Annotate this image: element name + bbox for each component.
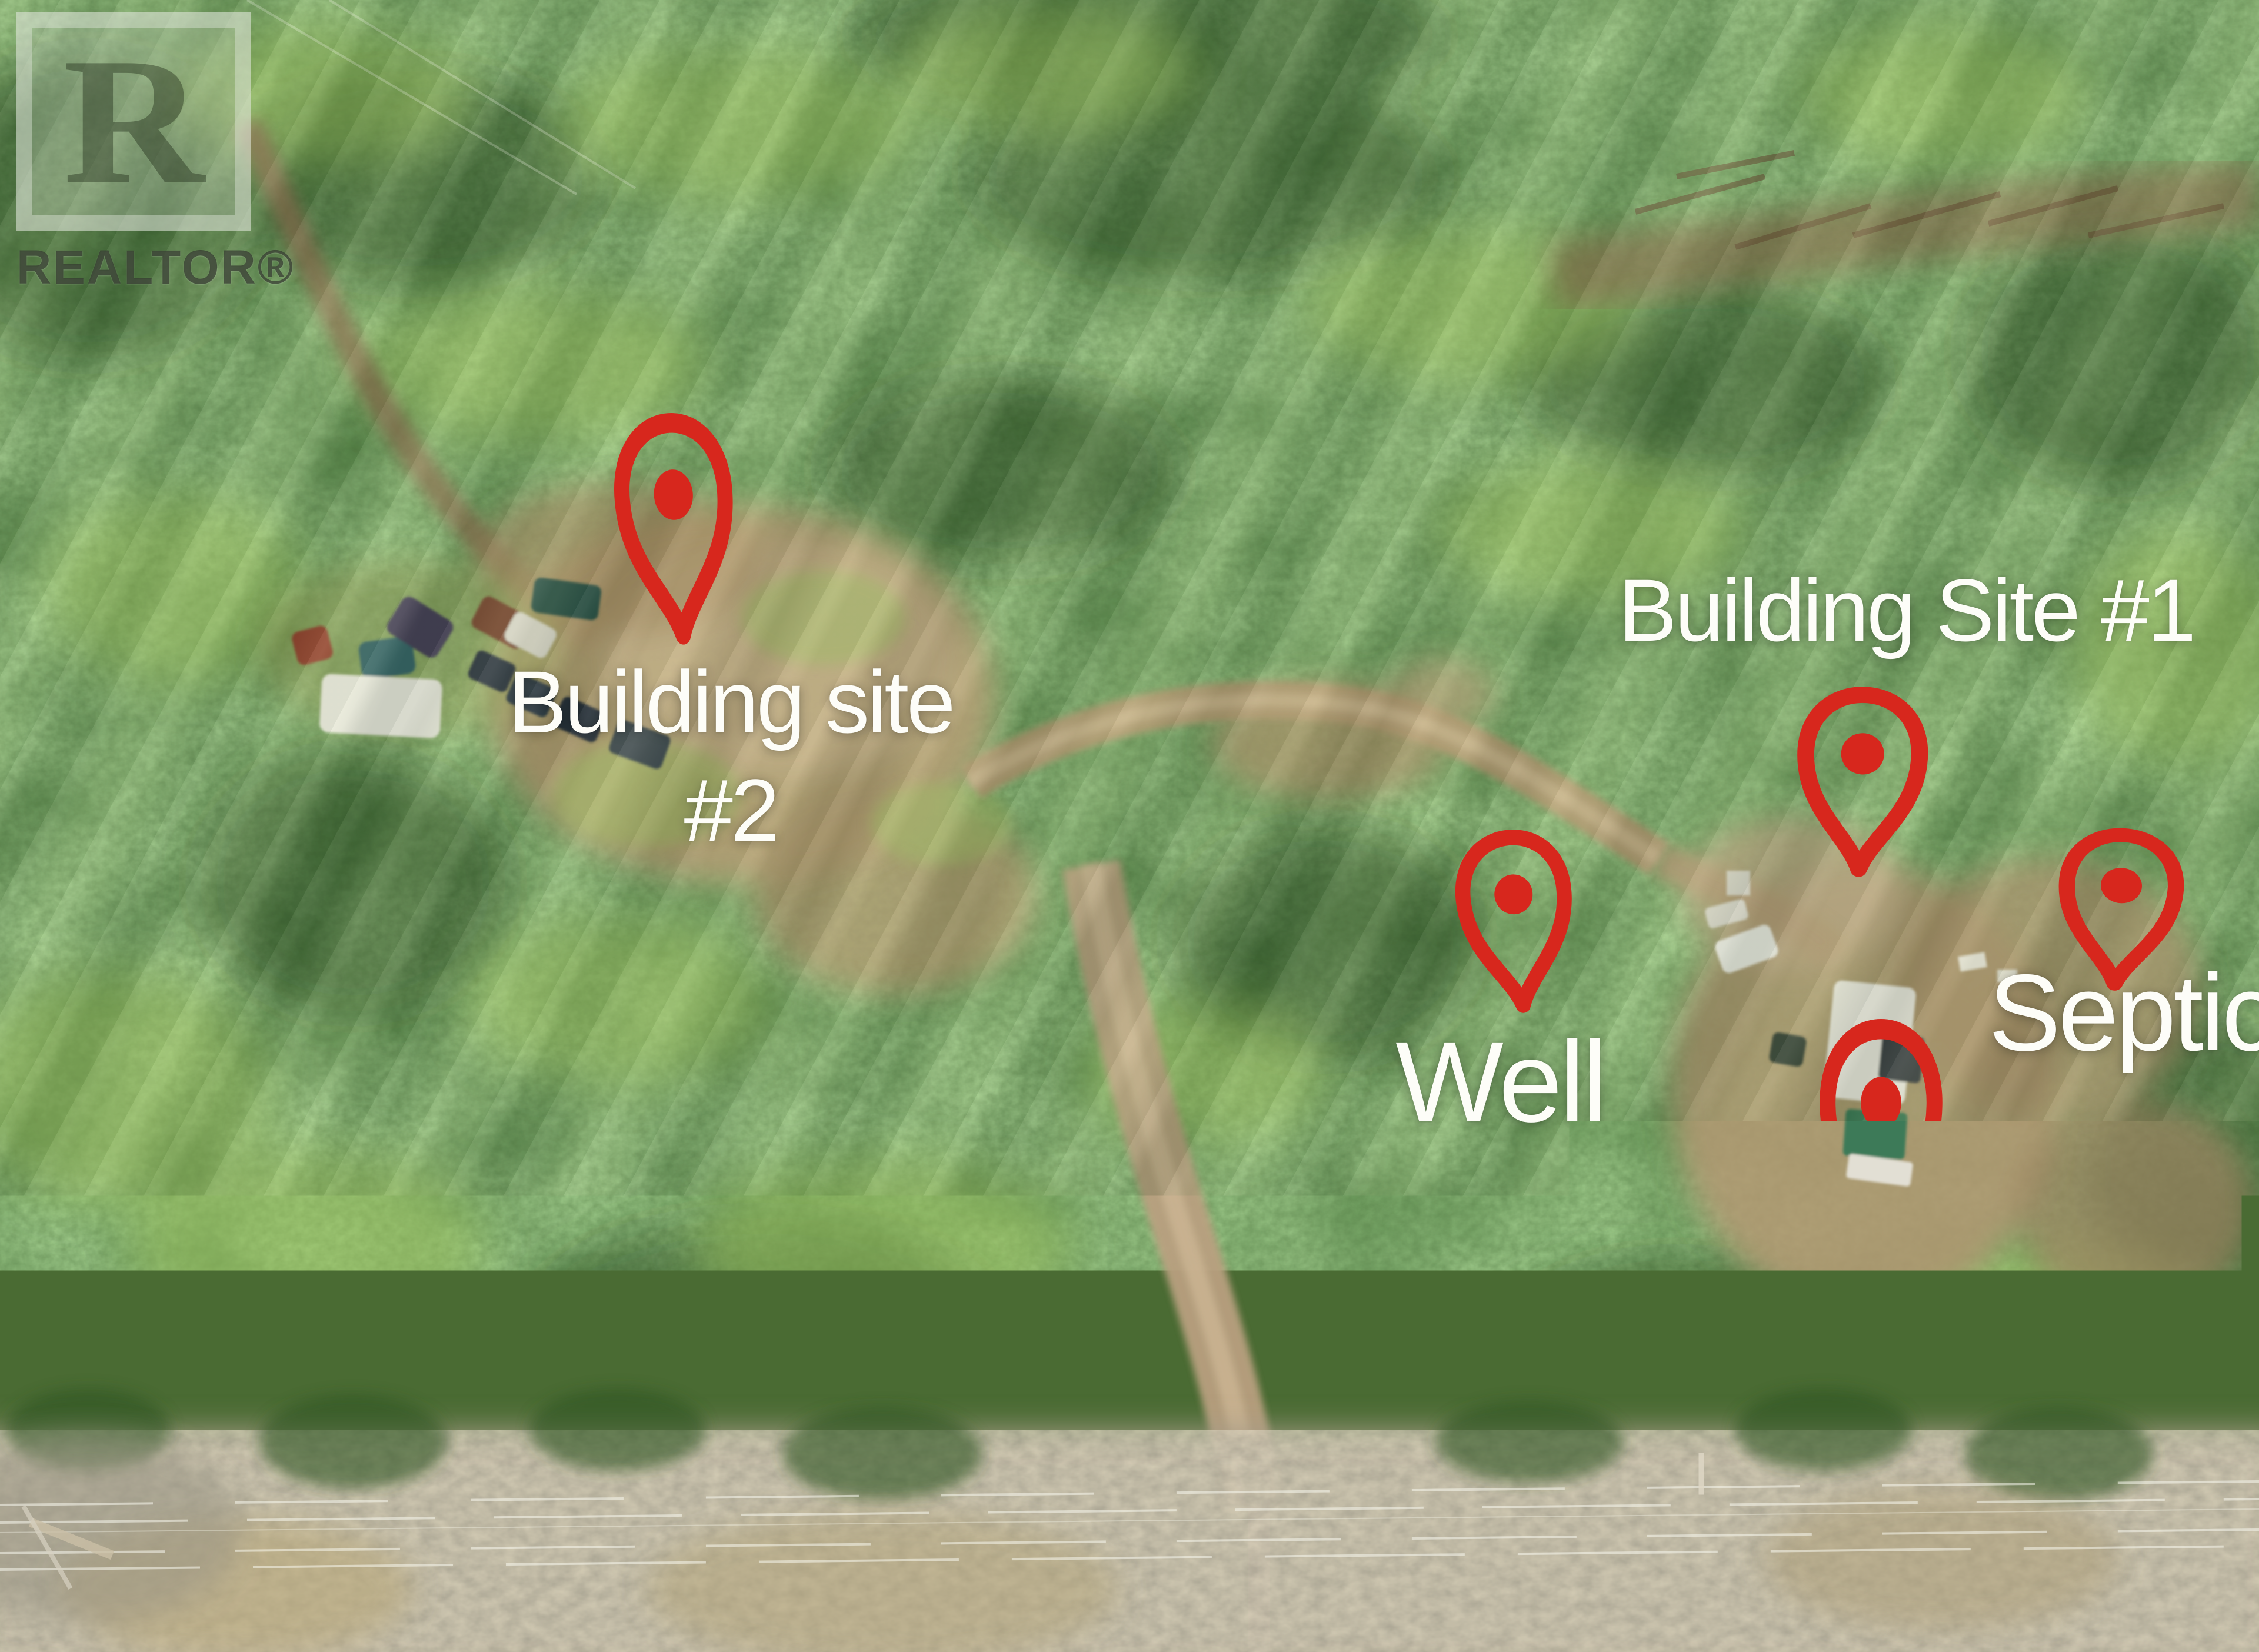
label-septic: Septic	[1988, 959, 2259, 1068]
realtor-watermark: R REALTOR®	[16, 12, 266, 295]
label-building-site-2-line2: #2	[378, 766, 1084, 854]
label-building-site-2-line1: Building site	[378, 658, 1084, 746]
map-pin-icon-well	[1440, 818, 1593, 1028]
realtor-logo-r: R	[63, 31, 204, 212]
map-pin-icon-building-site-1	[1781, 678, 1942, 890]
aerial-property-photo: R REALTOR® Building site #2 Building Sit…	[0, 0, 2259, 1652]
realtor-logo-box: R	[16, 12, 251, 231]
map-pin-icon-building-site-2	[598, 400, 754, 661]
vehicle-dark-suv	[1768, 1031, 1807, 1067]
label-well: Well	[1395, 1025, 1605, 1140]
label-200amp-service: 200amp service	[1433, 1285, 2257, 1373]
label-building-site-1: Building Site #1	[1553, 566, 2259, 654]
map-pin-icon-200amp-service	[1809, 1011, 1953, 1268]
debris-white	[1727, 871, 1750, 895]
realtor-watermark-label: REALTOR®	[16, 240, 266, 295]
